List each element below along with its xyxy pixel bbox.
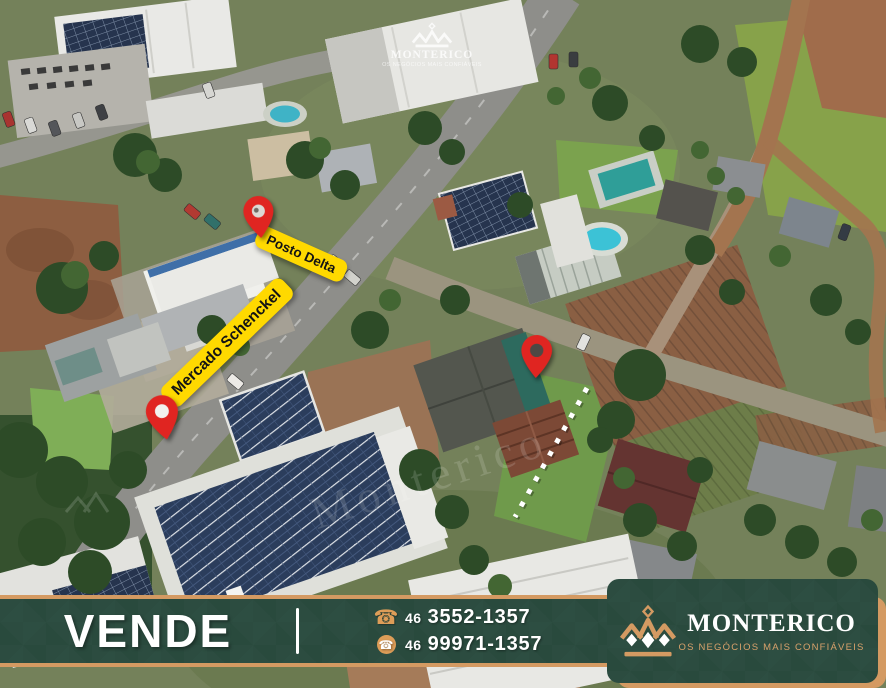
whatsapp-contact: ☎ 46 99971-1357 [373,633,542,656]
whatsapp-number: 99971-1357 [428,633,543,656]
whatsapp-area-code: 46 [405,637,422,653]
banner-divider [296,608,299,654]
map-pin-icon [241,193,277,240]
map-pin-icon [519,333,554,379]
sale-banner: VENDE ☎ 46 3552-1357 ☎ 46 99971-1357 [0,595,612,667]
brand-logo-panel: MONTERICO OS NEGÓCIOS MAIS CONFIÁVEIS [607,579,878,683]
property-ad: Monterico MONTERICO OS NEGÓCIOS MAIS CON… [0,0,886,688]
phone-contact: ☎ 46 3552-1357 [373,606,542,629]
map-pin-property [519,333,554,379]
brand-name: MONTERICO [677,610,866,638]
phone-number: 3552-1357 [428,606,531,629]
phone-icon: ☎ [373,608,399,628]
phone-area-code: 46 [405,610,422,626]
whatsapp-icon: ☎ [373,635,399,654]
crown-logo-icon [619,603,677,659]
brand-tagline: OS NEGÓCIOS MAIS CONFIÁVEIS [677,642,866,653]
sale-title: VENDE [64,605,232,657]
contact-list: ☎ 46 3552-1357 ☎ 46 99971-1357 [373,606,542,656]
map-pin-posto-delta [241,193,277,240]
